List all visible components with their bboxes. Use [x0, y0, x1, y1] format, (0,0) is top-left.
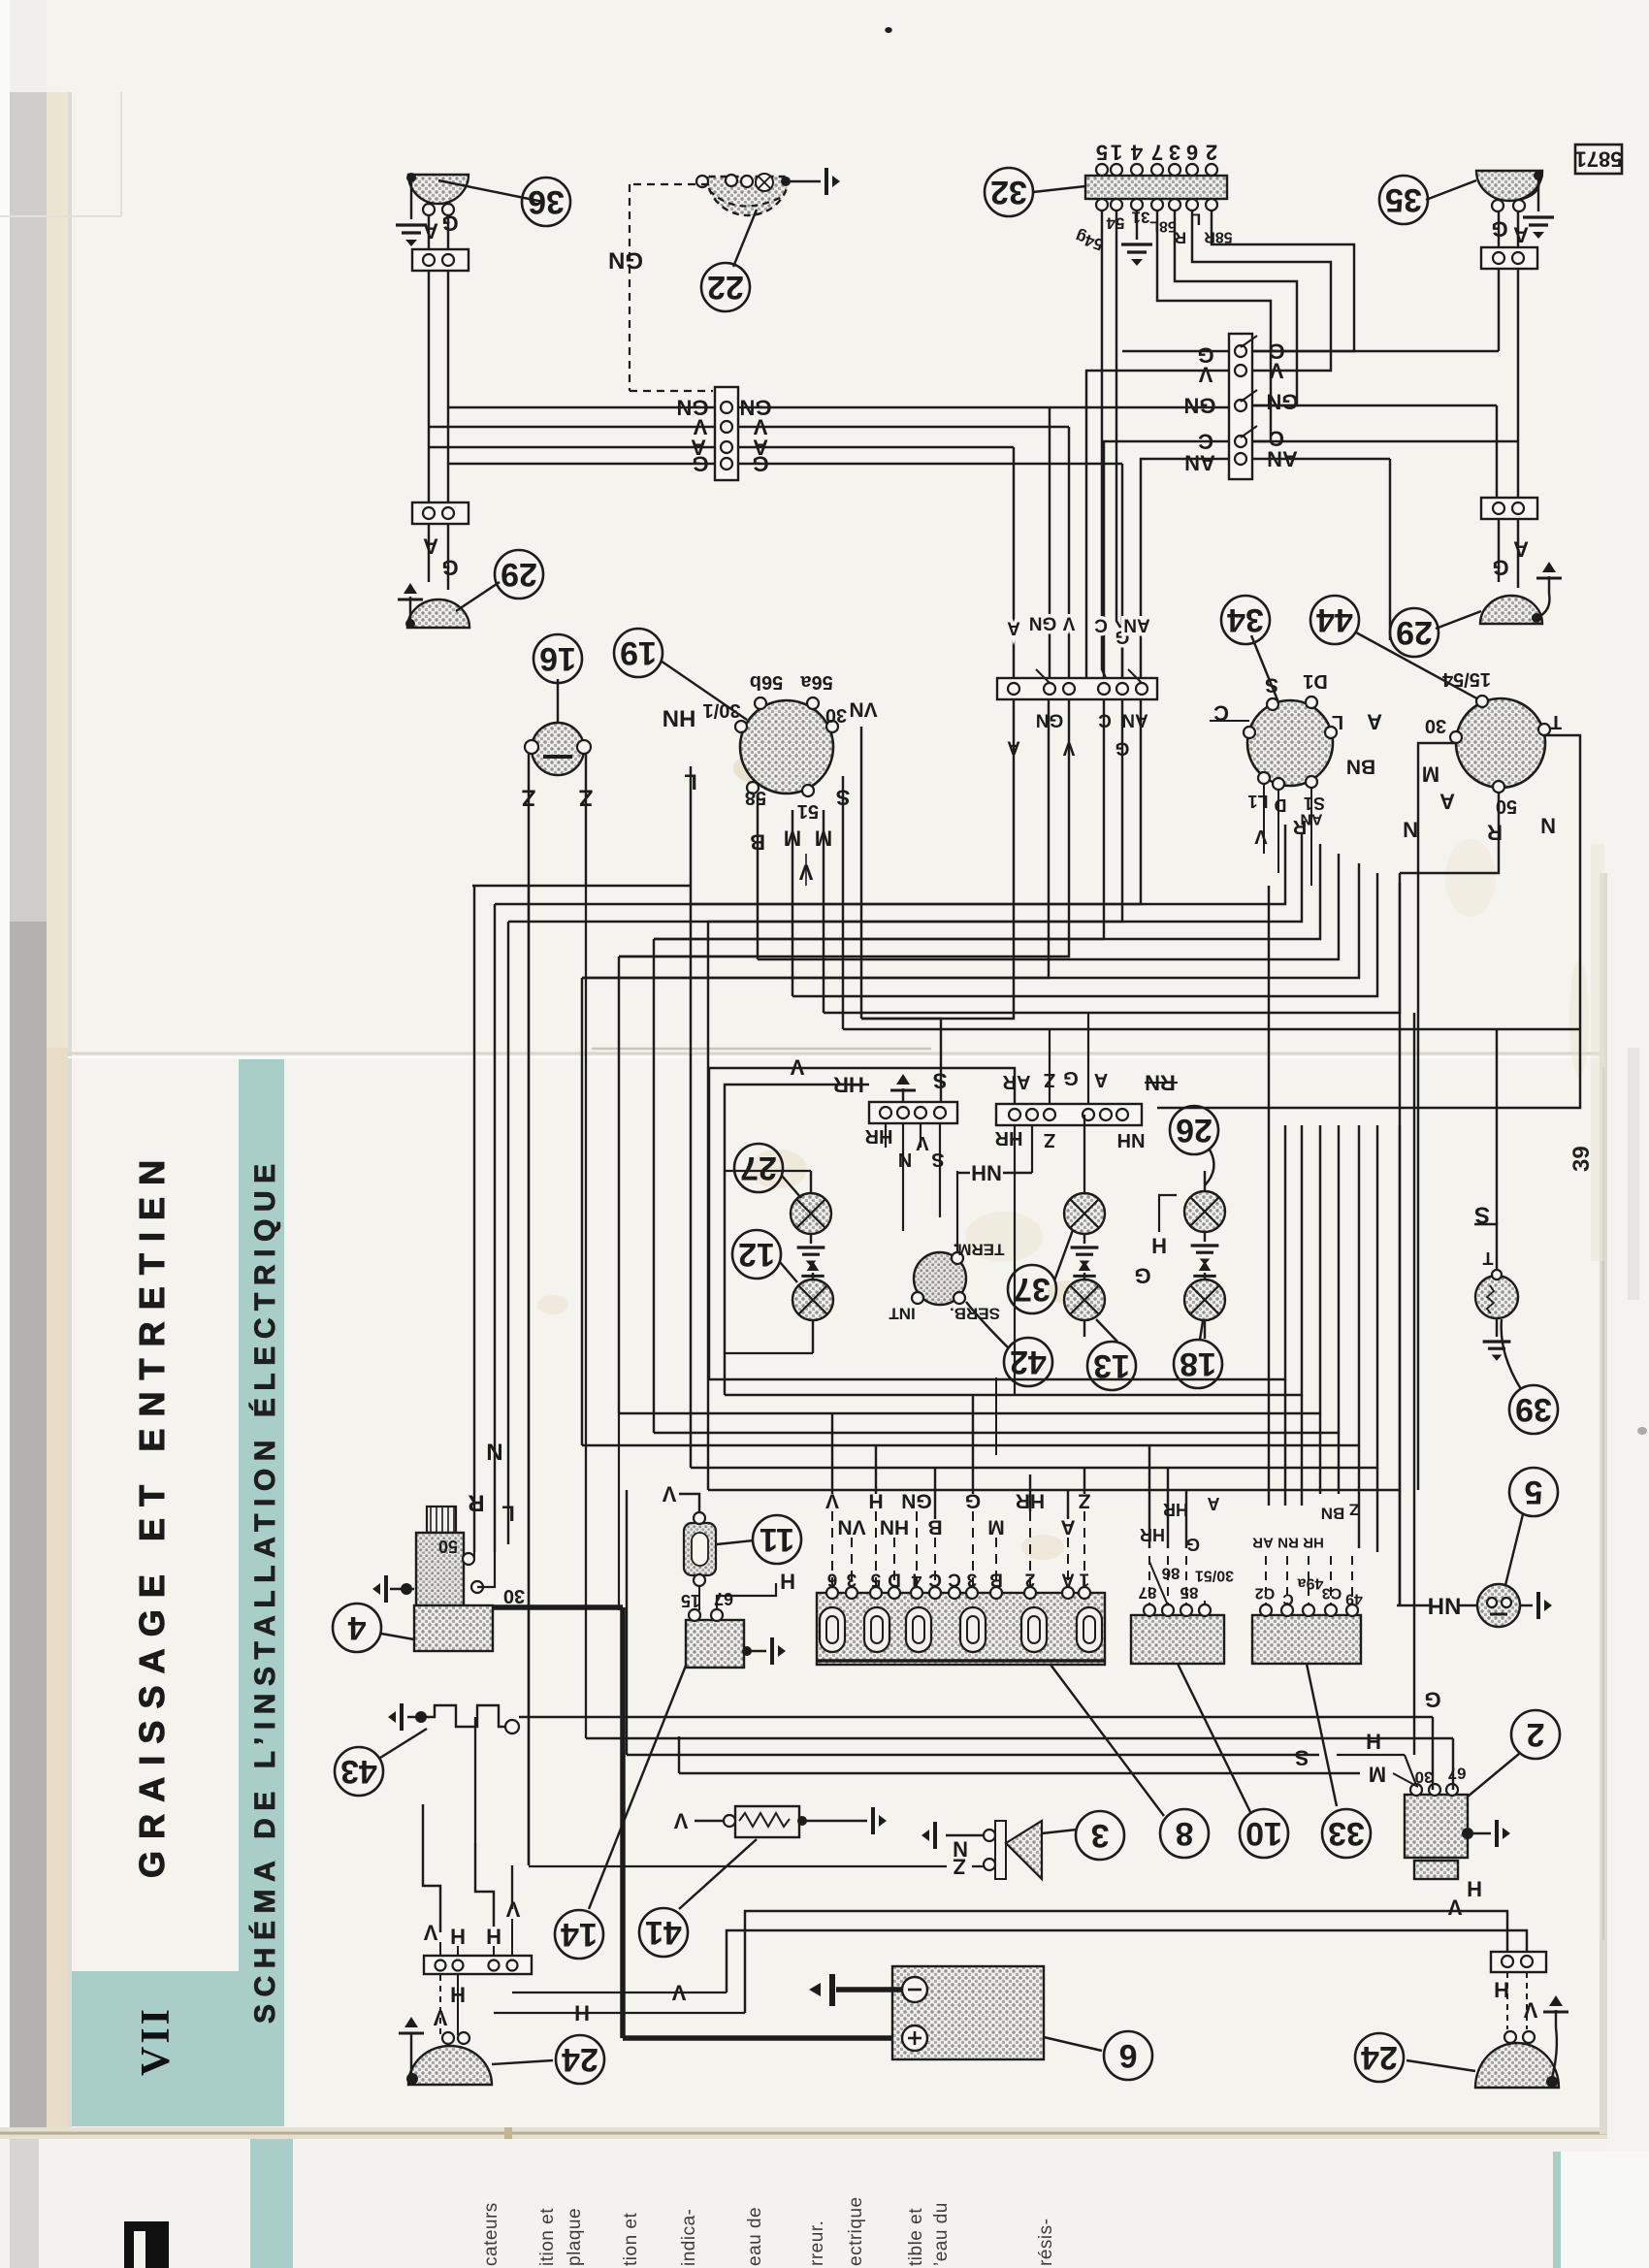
svg-text:tion et: tion et: [621, 2213, 641, 2266]
svg-text:V: V: [671, 1981, 686, 2005]
svg-text:32: 32: [990, 174, 1027, 211]
svg-text:A: A: [423, 535, 438, 559]
svg-text:16: 16: [539, 640, 576, 677]
svg-text:30/1: 30/1: [703, 699, 741, 721]
svg-text:39: 39: [1568, 1146, 1595, 1172]
svg-text:G: G: [441, 556, 458, 580]
svg-text:AR: AR: [1252, 1535, 1274, 1551]
svg-text:43: 43: [340, 1753, 377, 1790]
svg-text:30: 30: [503, 1585, 525, 1606]
svg-text:N: N: [486, 1439, 502, 1465]
svg-text:6: 6: [1119, 2037, 1138, 2074]
svg-text:H: H: [1151, 1234, 1167, 1258]
svg-text:AN: AN: [1184, 451, 1215, 475]
svg-text:8: 8: [1176, 1815, 1194, 1852]
svg-text:50: 50: [438, 1537, 458, 1556]
svg-text:résis-: résis-: [1036, 2219, 1056, 2266]
svg-text:T: T: [1550, 711, 1562, 732]
svg-text:3: 3: [1169, 141, 1180, 165]
svg-text:AN: AN: [1300, 811, 1322, 827]
svg-text:H: H: [1366, 1730, 1381, 1754]
svg-text:C: C: [948, 1570, 961, 1590]
svg-text:V: V: [662, 1482, 676, 1507]
svg-text:G: G: [1134, 1264, 1150, 1288]
svg-text:M: M: [1369, 1763, 1386, 1787]
svg-text:V: V: [1447, 1895, 1462, 1920]
svg-text:VN: VN: [837, 1516, 865, 1539]
svg-text:27: 27: [740, 1150, 777, 1186]
svg-text:6: 6: [1186, 141, 1198, 165]
svg-text:31: 31: [1132, 209, 1150, 227]
svg-text:M: M: [987, 1516, 1005, 1539]
svg-text:GN: GN: [1184, 394, 1216, 418]
svg-text:A: A: [423, 219, 438, 243]
svg-text:49: 49: [1345, 1591, 1363, 1607]
svg-text:34: 34: [1227, 601, 1264, 638]
svg-text:85: 85: [1180, 1584, 1199, 1603]
svg-text:13: 13: [1093, 1347, 1130, 1384]
svg-text:4: 4: [347, 1609, 366, 1646]
svg-text:36: 36: [528, 183, 565, 220]
svg-text:G: G: [965, 1490, 981, 1512]
svg-text:H: H: [574, 2001, 590, 2025]
svg-text:1: 1: [1111, 141, 1122, 165]
svg-text:cateurs: cateurs: [481, 2202, 501, 2266]
svg-text:G: G: [692, 452, 708, 476]
svg-text:22: 22: [707, 269, 744, 306]
svg-text:V: V: [1269, 359, 1283, 383]
svg-text:NH: NH: [1117, 1129, 1146, 1150]
svg-text:A: A: [1513, 223, 1529, 247]
svg-text:5871: 5871: [1575, 147, 1623, 172]
svg-text:24: 24: [562, 2041, 598, 2078]
svg-text:24: 24: [1361, 2039, 1398, 2076]
svg-text:H: H: [450, 1983, 466, 2007]
svg-text:56a: 56a: [799, 671, 832, 693]
svg-text:C: C: [1282, 1591, 1294, 1607]
svg-text:G: G: [1186, 1535, 1200, 1554]
svg-text:G: G: [1424, 1688, 1440, 1712]
svg-text:3: 3: [1091, 1817, 1110, 1854]
svg-text:37: 37: [1014, 1271, 1051, 1308]
svg-text:G: G: [1063, 1067, 1079, 1088]
svg-text:GN: GN: [901, 1490, 932, 1512]
svg-text:V: V: [423, 1921, 437, 1945]
svg-text:D: D: [1275, 795, 1287, 815]
svg-text:N: N: [1540, 814, 1556, 838]
svg-text:H: H: [486, 1925, 501, 1949]
svg-text:4: 4: [1130, 141, 1143, 165]
svg-text:M: M: [1422, 762, 1439, 787]
svg-text:VN: VN: [849, 698, 877, 721]
svg-text:D1: D1: [1303, 670, 1328, 692]
svg-text:S: S: [1474, 1202, 1490, 1228]
svg-text:12: 12: [738, 1236, 775, 1273]
svg-text:eau de: eau de: [745, 2207, 765, 2266]
svg-text:29: 29: [501, 556, 537, 593]
svg-text:Z: Z: [522, 785, 536, 811]
svg-text:30: 30: [1425, 715, 1446, 736]
svg-text:AR: AR: [1002, 1071, 1030, 1092]
svg-text:54: 54: [1106, 214, 1124, 233]
svg-text:GN: GN: [1267, 390, 1299, 414]
svg-text:15: 15: [681, 1591, 700, 1610]
svg-text:HR: HR: [1163, 1500, 1188, 1519]
svg-text:29: 29: [1396, 614, 1433, 651]
svg-text:GN: GN: [608, 247, 643, 274]
svg-text:GN: GN: [1029, 613, 1057, 633]
svg-text:R: R: [1175, 229, 1186, 247]
svg-text:A: A: [1060, 1516, 1075, 1539]
svg-text:C: C: [1094, 615, 1108, 635]
svg-text:30: 30: [1415, 1768, 1434, 1787]
svg-text:S: S: [1265, 674, 1278, 697]
svg-text:V: V: [1523, 1998, 1537, 2023]
svg-text:plaque: plaque: [565, 2208, 585, 2266]
svg-text:rreur.: rreur.: [807, 2220, 827, 2266]
svg-text:10: 10: [1245, 1815, 1282, 1852]
svg-text:AN: AN: [1121, 710, 1148, 730]
svg-text:S: S: [1295, 1746, 1309, 1770]
svg-text:C2: C2: [1255, 1585, 1276, 1602]
svg-text:BN: BN: [1346, 756, 1375, 778]
svg-text:tible et: tible et: [906, 2208, 926, 2266]
svg-text:A: A: [1513, 537, 1529, 562]
svg-text:R: R: [468, 1490, 484, 1516]
svg-text:HN: HN: [663, 705, 696, 731]
svg-text:51: 51: [797, 800, 819, 822]
svg-text:87: 87: [1139, 1584, 1157, 1603]
svg-text:Z: Z: [579, 785, 594, 811]
svg-text:41: 41: [645, 1914, 682, 1951]
svg-text:Z: Z: [1044, 1129, 1055, 1150]
svg-text:58R: 58R: [1204, 229, 1233, 245]
svg-text:14: 14: [561, 1916, 598, 1953]
svg-text:G: G: [1492, 556, 1508, 580]
svg-text:V: V: [825, 1490, 839, 1512]
svg-text:49a: 49a: [1298, 1575, 1324, 1592]
svg-text:S: S: [931, 1149, 944, 1170]
svg-text:33: 33: [1328, 1815, 1365, 1852]
svg-text:5: 5: [1525, 1474, 1543, 1510]
svg-text:L: L: [501, 1502, 514, 1526]
svg-text:HR: HR: [864, 1125, 892, 1147]
svg-text:58L: 58L: [1149, 218, 1177, 235]
svg-text:L1: L1: [1247, 792, 1268, 811]
svg-text:35: 35: [1385, 181, 1422, 218]
svg-text:V: V: [673, 1809, 688, 1833]
svg-text:30/51: 30/51: [1195, 1568, 1234, 1584]
svg-text:Z: Z: [953, 1855, 965, 1879]
svg-text:G: G: [441, 211, 458, 236]
svg-text:N: N: [898, 1149, 912, 1170]
svg-text:NH: NH: [1428, 1593, 1462, 1619]
svg-text:C: C: [1213, 701, 1229, 726]
svg-text:R: R: [1487, 821, 1503, 845]
svg-text:T: T: [1483, 1248, 1494, 1268]
svg-text:18: 18: [1180, 1345, 1216, 1382]
svg-text:NH: NH: [971, 1161, 1002, 1185]
svg-text:15/54: 15/54: [1441, 668, 1491, 690]
svg-text:ectrique: ectrique: [846, 2196, 866, 2266]
svg-text:30: 30: [825, 704, 847, 726]
svg-text:H: H: [1494, 1978, 1509, 2002]
svg-text:V: V: [1254, 826, 1268, 847]
svg-text:H: H: [450, 1925, 466, 1949]
svg-text:’eau du: ’eau du: [931, 2202, 952, 2266]
svg-text:S1: S1: [1304, 794, 1325, 813]
svg-text:INT: INT: [889, 1305, 916, 1323]
svg-text:42: 42: [1010, 1344, 1047, 1380]
svg-text:L: L: [1332, 711, 1343, 732]
svg-text:2: 2: [1527, 1716, 1545, 1753]
svg-text:H: H: [868, 1490, 883, 1512]
svg-text:B: B: [927, 1516, 942, 1539]
svg-text:V: V: [916, 1132, 929, 1153]
svg-text:ition et: ition et: [537, 2208, 558, 2266]
svg-text:SCHÉMA DE L’INSTALLATION ÉLECT: SCHÉMA DE L’INSTALLATION ÉLECTRIQUE: [248, 1156, 281, 2024]
svg-text:H: H: [1467, 1877, 1482, 1901]
svg-text:A: A: [1208, 1494, 1220, 1513]
svg-text:19: 19: [620, 634, 657, 671]
svg-text:HN: HN: [880, 1516, 909, 1539]
svg-text:39: 39: [1515, 1391, 1552, 1428]
svg-text:HR: HR: [1303, 1535, 1324, 1551]
svg-text:TERM.: TERM.: [954, 1241, 1005, 1259]
svg-text:26: 26: [1176, 1112, 1212, 1149]
svg-text:44: 44: [1316, 601, 1353, 638]
svg-text:indica-: indica-: [679, 2209, 699, 2266]
svg-text:VII: VII: [134, 2006, 178, 2076]
svg-text:N: N: [1403, 818, 1418, 842]
svg-text:H: H: [780, 1570, 795, 1594]
svg-text:67: 67: [1448, 1765, 1467, 1783]
svg-text:V: V: [433, 2006, 447, 2030]
svg-text:V: V: [1062, 613, 1075, 633]
svg-text:S: S: [933, 1069, 948, 1093]
svg-text:Z: Z: [1349, 1501, 1359, 1519]
svg-text:A: A: [1007, 618, 1020, 638]
svg-text:5: 5: [1096, 141, 1108, 165]
svg-text:BN: BN: [1321, 1505, 1345, 1523]
svg-text:86: 86: [1162, 1565, 1180, 1583]
svg-text:11: 11: [760, 1521, 794, 1558]
svg-text:C3: C3: [1322, 1585, 1342, 1602]
svg-text:V: V: [1198, 363, 1212, 387]
svg-text:GRAISSAGE ET ENTRETIEN: GRAISSAGE ET ENTRETIEN: [132, 1149, 172, 1878]
svg-text:AN: AN: [1123, 615, 1149, 635]
svg-text:58: 58: [745, 787, 766, 808]
svg-text:HR: HR: [1140, 1525, 1165, 1544]
svg-text:7: 7: [1151, 141, 1163, 165]
svg-text:A: A: [1094, 1069, 1108, 1090]
svg-text:A: A: [1367, 710, 1382, 734]
svg-text:RN: RN: [1277, 1535, 1299, 1551]
svg-text:A: A: [1439, 790, 1455, 814]
svg-text:HR: HR: [994, 1127, 1022, 1149]
svg-text:2: 2: [1206, 141, 1217, 165]
svg-text:56b: 56b: [750, 671, 783, 693]
svg-text:Z: Z: [1078, 1490, 1090, 1512]
